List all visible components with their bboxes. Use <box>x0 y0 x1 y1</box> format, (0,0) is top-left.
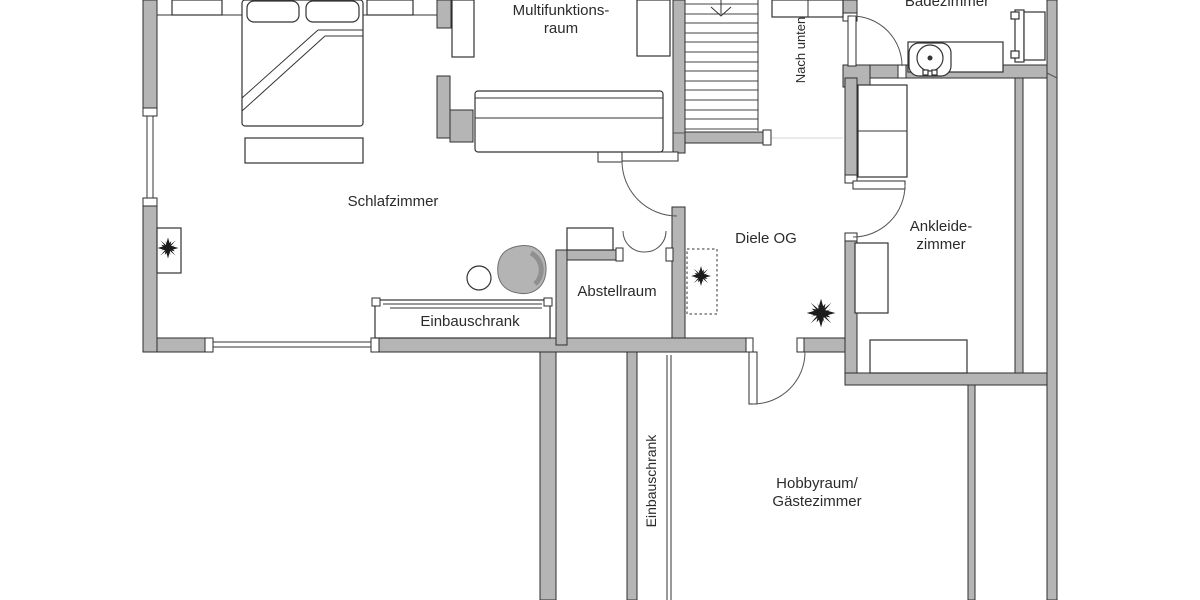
door-ankleidezimmer <box>853 181 905 237</box>
stair-handrail <box>685 132 763 143</box>
wall-lower-outer-west <box>540 352 556 600</box>
sidetable-block <box>450 110 473 142</box>
window-south-bedroom <box>213 342 371 347</box>
room-label-multifunktionsraum-line2: raum <box>544 20 578 37</box>
window-west <box>147 116 153 198</box>
room-label-hobbyraum-line1: Hobbyraum/ <box>776 475 859 492</box>
pillow-right <box>306 1 359 22</box>
wardrobe-ankleide-west <box>855 243 888 313</box>
wall-left-lower <box>143 206 157 352</box>
closet-jamb <box>372 298 380 306</box>
door-leaf <box>749 352 757 404</box>
stair-treads <box>685 4 758 129</box>
door-swing-arc <box>853 185 905 237</box>
folding-door-abstellraum <box>623 231 666 252</box>
room-label-ankleide-line1: Ankleide- <box>910 218 973 235</box>
stool <box>467 266 491 290</box>
shower-door <box>1011 10 1024 62</box>
plant-icon <box>158 238 179 259</box>
pillow-left <box>247 1 299 22</box>
door-swing-arc <box>622 161 677 216</box>
window-jamb <box>143 108 157 116</box>
door-jamb <box>898 65 906 78</box>
wall-right-inner-knee <box>1015 77 1023 373</box>
bed <box>242 0 363 126</box>
wall-hobby-east-knee <box>968 385 975 600</box>
stair-direction-label: Nach unten <box>793 17 808 84</box>
door-swing-arc <box>753 352 805 404</box>
wall-south-bedroom-left <box>157 338 205 352</box>
folding-door-leaf <box>623 231 644 252</box>
window-jamb <box>371 338 379 352</box>
wall-pier-daybed <box>437 76 450 138</box>
door-swing-arc <box>852 16 902 66</box>
label-einbauschrank-schlafzimmer: Einbauschrank <box>420 313 520 330</box>
wall-ankleide-west-upper <box>845 78 857 183</box>
room-label-hobbyraum-line2: Gästezimmer <box>772 493 861 510</box>
room-label-ankleide-line2: zimmer <box>916 236 965 253</box>
door-hobbyraum <box>749 352 805 404</box>
wall-right-outer <box>1047 0 1057 600</box>
wall-south-diele <box>804 338 845 352</box>
sideboard-ankleide <box>870 340 967 373</box>
room-label-diele-og: Diele OG <box>735 230 797 247</box>
bed-bench <box>245 138 363 163</box>
door-jamb <box>598 151 622 162</box>
room-label-multifunktionsraum-line1: Multifunktions- <box>513 2 610 19</box>
washbasin-icon <box>908 42 1003 76</box>
folding-door-jamb <box>666 248 673 261</box>
wall-stairwell <box>673 0 685 153</box>
door-leaf <box>853 181 905 189</box>
floorplan-svg: Multifunktions- raum Schlafzimmer Badezi… <box>0 0 1200 600</box>
dresser-diele <box>772 0 843 17</box>
cabinet-badezimmer <box>1024 12 1045 60</box>
plant-icon <box>807 299 836 328</box>
closet-front-line <box>667 355 671 600</box>
door-jamb <box>797 338 804 352</box>
cabinet-multifunktionsraum <box>452 0 474 57</box>
floorplan-canvas: Multifunktions- raum Schlafzimmer Badezi… <box>0 0 1200 600</box>
daybed <box>475 91 663 152</box>
door-jamb <box>746 338 753 352</box>
room-label-abstellraum: Abstellraum <box>577 283 656 300</box>
wardrobe-ankleide-upper <box>858 85 907 177</box>
room-label-badezimmer: Badezimmer <box>905 0 989 10</box>
label-einbauschrank-hobbyraum: Einbauschrank <box>643 434 659 528</box>
wall-abstellraum-west <box>556 250 567 345</box>
window-jamb <box>205 338 213 352</box>
door-leaf <box>622 152 678 161</box>
wall-lower-inner-west <box>627 352 637 600</box>
door-schlafzimmer <box>598 151 678 216</box>
wall-abstellraum-east <box>672 207 685 338</box>
plant-icon <box>691 266 711 286</box>
stairs <box>685 0 758 131</box>
wall-ankleide-south <box>845 373 1057 385</box>
cabinet-stairwell <box>637 0 670 56</box>
door-badezimmer <box>848 16 902 66</box>
built-in-closet-hobbyraum <box>667 355 671 600</box>
shelf-abstellraum <box>567 228 613 250</box>
furniture <box>157 0 1045 600</box>
folding-door-jamb <box>616 248 623 261</box>
door-leaf <box>848 16 856 66</box>
nightstand-right <box>367 0 413 15</box>
beanbag <box>498 246 546 294</box>
window-jamb <box>143 198 157 206</box>
wall-left-upper <box>143 0 157 110</box>
closet-jamb <box>544 298 552 306</box>
handrail-end-cap <box>763 130 771 145</box>
folding-door-leaf <box>644 231 666 252</box>
nightstand-left <box>172 0 222 15</box>
room-label-schlafzimmer: Schlafzimmer <box>348 193 439 210</box>
wall-pier-multifunktionsraum <box>437 0 451 28</box>
